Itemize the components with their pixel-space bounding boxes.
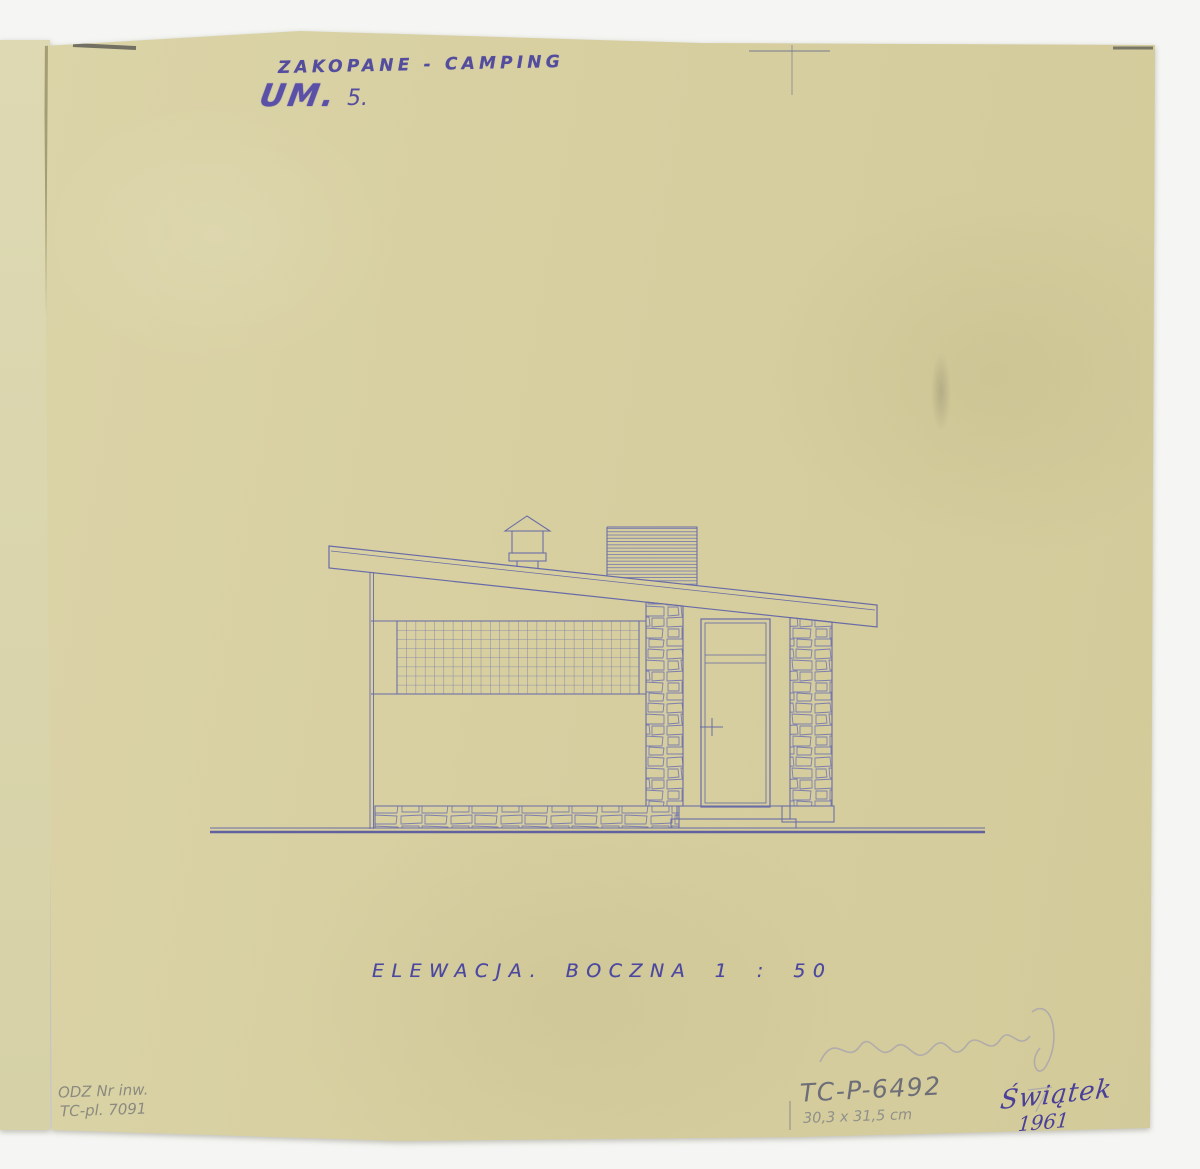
roof-louver-icon [607, 527, 697, 587]
paper-sheet-wrap: ZAKOPANE - CAMPING UM. 5. ELEWACJA. BOCZ… [0, 0, 1200, 1169]
inventory-note-line2: TC-pl. 7091 [60, 1099, 147, 1120]
um-stamp: UM. [257, 78, 340, 114]
under-sheet-edge [0, 40, 50, 1130]
stone-foundation [375, 806, 679, 828]
um-stamp-number: 5. [347, 86, 368, 111]
entrance-door [700, 619, 770, 807]
inventory-note-line1: ODZ Nr inw. [58, 1080, 149, 1101]
right-stone-pillar [782, 618, 834, 823]
left-wall-edge [370, 572, 374, 829]
window-grid [371, 621, 646, 694]
signature-year: 1961 [1017, 1108, 1070, 1137]
door-handle-icon [700, 718, 723, 736]
elevation-drawing [0, 0, 1200, 1169]
roof-vent-icon [505, 516, 550, 569]
shed-roof [329, 546, 877, 627]
paper-sheet: ZAKOPANE - CAMPING UM. 5. ELEWACJA. BOCZ… [0, 0, 1200, 1169]
entry-step [671, 806, 796, 828]
elevation-caption: ELEWACJA. BOCZNA 1 : 50 [372, 960, 833, 982]
ground-line [210, 828, 985, 832]
page-background: { "sheet": { "paper_color": "#d7cfa0", "… [0, 0, 1200, 1169]
center-stone-pillar [646, 602, 683, 806]
